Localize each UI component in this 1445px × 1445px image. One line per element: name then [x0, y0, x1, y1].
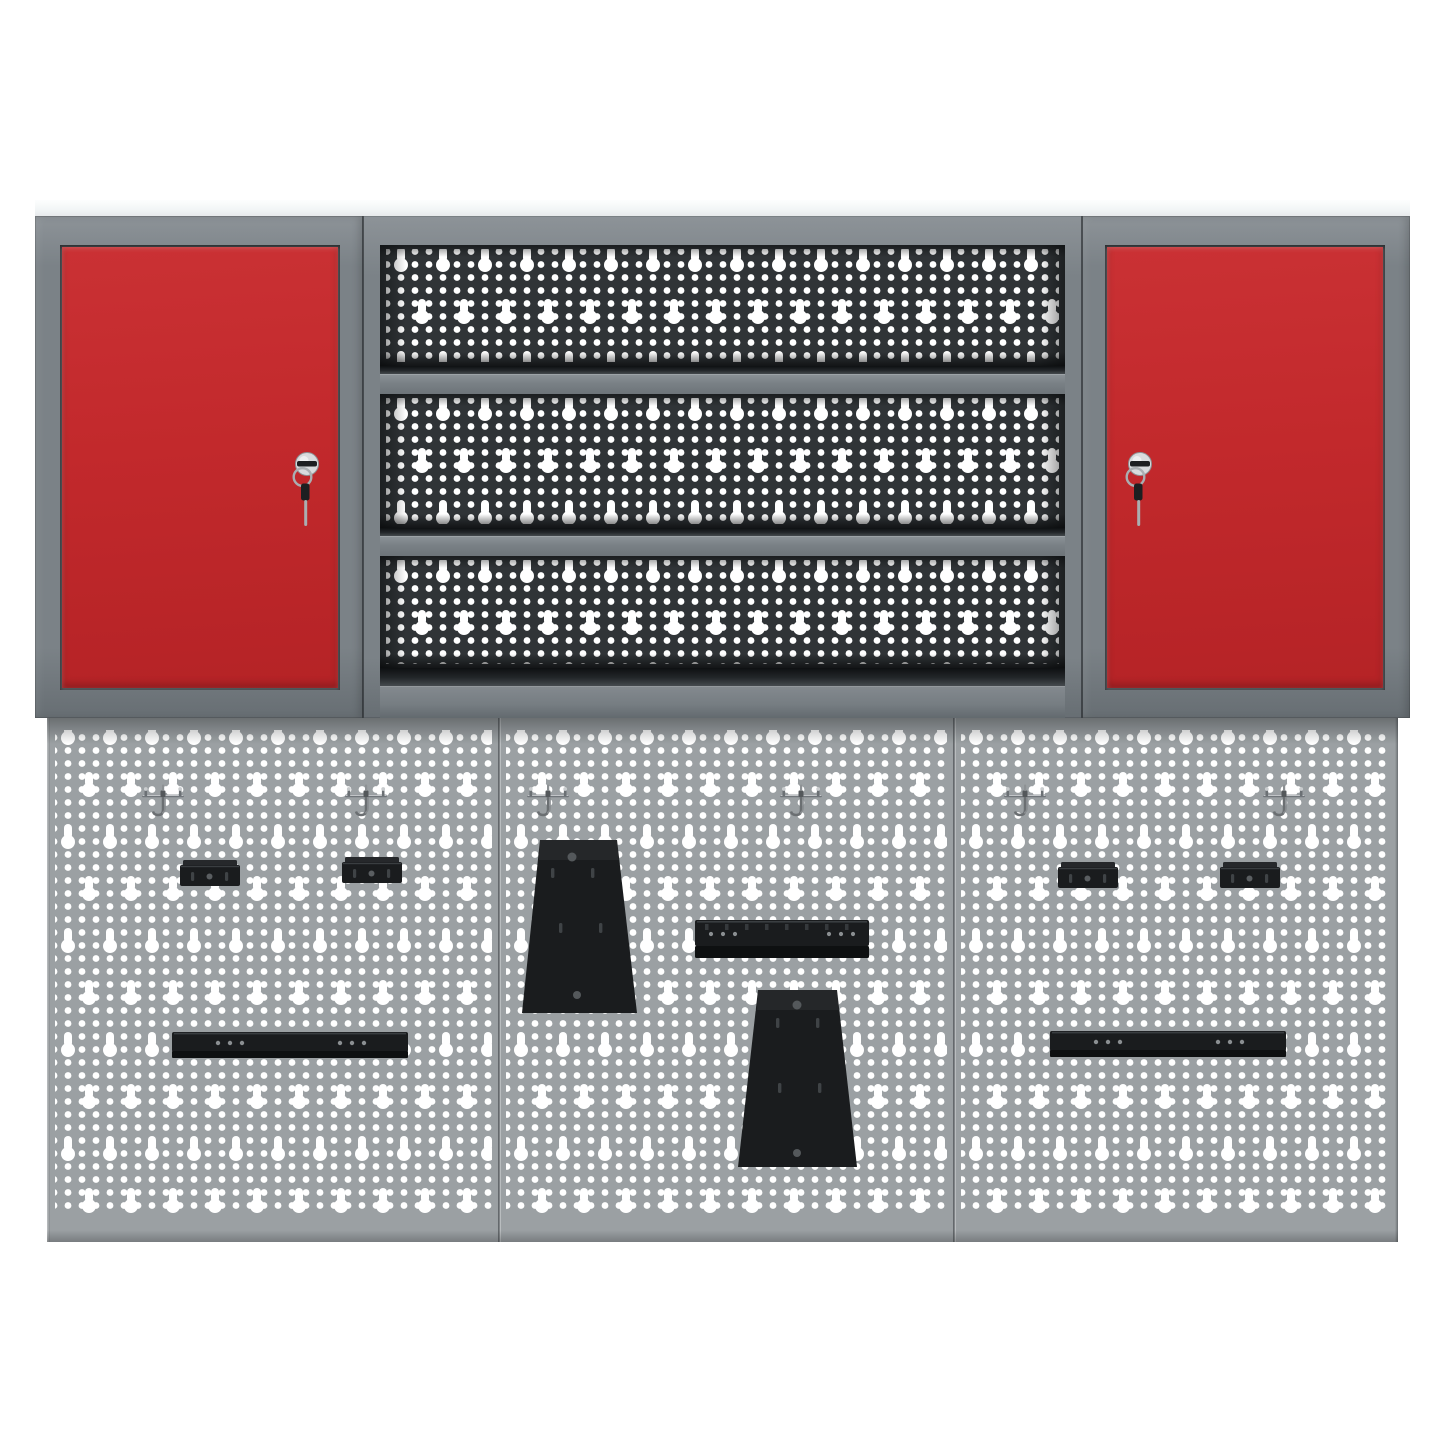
module-seam [1081, 216, 1083, 718]
left-door-recess [60, 245, 340, 690]
lock-slot [297, 461, 317, 467]
opening-shadow [380, 245, 406, 366]
shelf-board-1 [380, 374, 1065, 395]
panel-edge [47, 718, 50, 1242]
opening-shadow [1039, 556, 1065, 668]
opening-shadow [380, 654, 1065, 668]
perforated-back-panel-1 [380, 245, 1065, 366]
panel-edge [1395, 718, 1398, 1242]
panel-seam [498, 718, 501, 1242]
hook-bracket-3 [1057, 861, 1119, 889]
shelf-opening-2 [380, 394, 1065, 528]
perforated-back-panel-2 [380, 394, 1065, 528]
cabinet-drop-shadow [47, 718, 1398, 744]
double-hook-6 [1260, 783, 1308, 819]
bottom-board-top [380, 668, 1065, 686]
opening-shadow [1039, 245, 1065, 366]
opening-shadow [380, 556, 406, 668]
pegboard-wall [47, 718, 1398, 1242]
hook-bracket-1 [179, 859, 241, 887]
opening-shadow [380, 352, 1065, 366]
mounting-plate-upper [515, 835, 645, 1020]
panel-seam [953, 718, 956, 1242]
key-shaft [304, 500, 307, 526]
wall-bottom-shade [47, 1230, 1398, 1242]
lock-slot [1130, 461, 1150, 467]
double-hook-2 [342, 783, 390, 819]
opening-shadow [380, 394, 406, 528]
key-head [301, 484, 310, 501]
pegboard-panel-left [47, 718, 500, 1242]
right-cabinet-door [1107, 247, 1383, 688]
shelf-board-1-top [380, 366, 1065, 374]
opening-shadow [380, 394, 1065, 406]
key-shaft [1137, 500, 1140, 526]
shelf-board-2 [380, 536, 1065, 557]
tool-rail-right [1050, 1028, 1286, 1058]
hook-bracket-2 [341, 856, 403, 884]
double-hook-4 [777, 783, 825, 819]
right-door-recess [1105, 245, 1385, 690]
hook-bracket-4 [1219, 861, 1281, 889]
bottom-rail [380, 686, 1065, 719]
tool-rail-left [172, 1029, 408, 1059]
double-hook-1 [139, 783, 187, 819]
right-wall-cabinet [1082, 216, 1410, 718]
shelf-opening-3 [380, 556, 1065, 668]
mounting-plate-lower [731, 985, 864, 1174]
opening-shadow [1039, 394, 1065, 528]
open-shelf-unit [363, 216, 1082, 718]
opening-shadow [380, 556, 1065, 568]
module-seam [362, 216, 364, 718]
key-head [1134, 484, 1143, 501]
perforated-back-panel-3 [380, 556, 1065, 668]
left-door-lock [289, 450, 325, 532]
opening-shadow [380, 245, 1065, 257]
product-photo-stage [0, 0, 1445, 1445]
opening-shadow [380, 514, 1065, 528]
right-door-lock [1122, 450, 1158, 532]
cabinet-top-panel [35, 200, 1410, 217]
shelf-opening-1 [380, 245, 1065, 366]
left-cabinet-door [62, 247, 338, 688]
double-hook-3 [524, 783, 572, 819]
shelf-board-2-top [380, 528, 1065, 536]
double-hook-5 [1001, 783, 1049, 819]
tool-rail-middle [695, 916, 869, 960]
left-wall-cabinet [35, 216, 363, 718]
